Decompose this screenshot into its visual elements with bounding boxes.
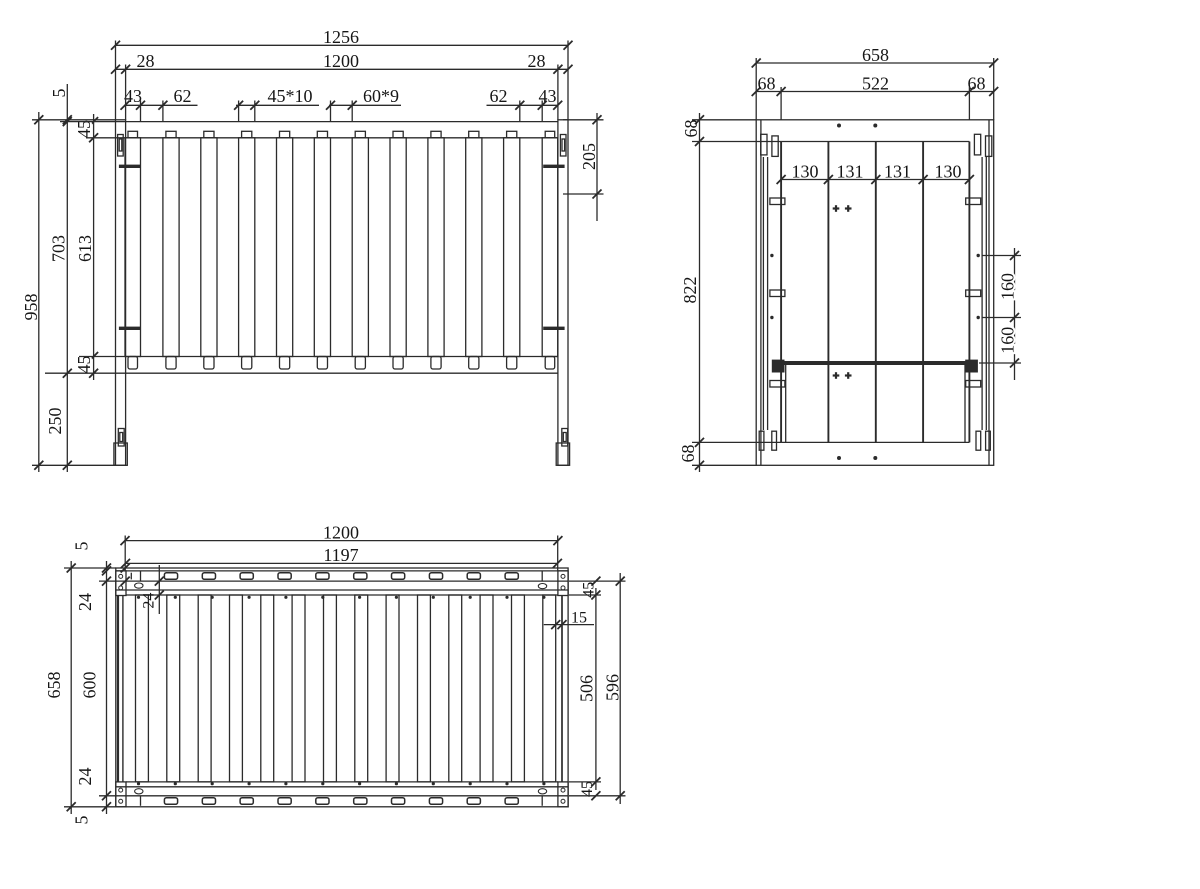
svg-text:596: 596 [603, 674, 623, 701]
svg-text:28: 28 [528, 51, 546, 71]
svg-text:68: 68 [681, 120, 701, 138]
svg-text:68: 68 [968, 73, 986, 93]
svg-text:130: 130 [935, 161, 962, 181]
svg-text:45*10: 45*10 [268, 86, 313, 106]
svg-text:522: 522 [862, 73, 889, 93]
svg-text:250: 250 [45, 408, 65, 435]
svg-text:1200: 1200 [323, 51, 359, 71]
svg-text:131: 131 [837, 161, 864, 181]
svg-text:5: 5 [72, 816, 92, 825]
svg-text:1200: 1200 [323, 522, 359, 542]
svg-text:658: 658 [44, 672, 64, 699]
svg-text:24: 24 [75, 593, 95, 611]
svg-text:24: 24 [75, 768, 95, 786]
svg-text:613: 613 [75, 235, 95, 262]
svg-text:600: 600 [80, 672, 100, 699]
svg-text:45: 45 [579, 781, 596, 797]
svg-text:62: 62 [174, 86, 192, 106]
svg-text:24: 24 [141, 593, 158, 609]
svg-text:45: 45 [74, 120, 94, 138]
svg-text:822: 822 [680, 277, 700, 304]
svg-text:5: 5 [49, 89, 69, 98]
svg-text:43: 43 [124, 86, 142, 106]
svg-text:5: 5 [72, 542, 92, 551]
svg-text:28: 28 [137, 51, 155, 71]
svg-text:160: 160 [998, 327, 1018, 354]
svg-text:160: 160 [998, 273, 1018, 300]
svg-text:62: 62 [490, 86, 508, 106]
svg-text:131: 131 [884, 161, 911, 181]
svg-text:68: 68 [758, 73, 776, 93]
svg-text:130: 130 [792, 161, 819, 181]
svg-text:658: 658 [862, 45, 889, 65]
svg-text:1197: 1197 [323, 545, 358, 565]
svg-text:68: 68 [678, 445, 698, 463]
svg-text:205: 205 [579, 143, 599, 170]
svg-text:45: 45 [74, 356, 94, 374]
svg-text:703: 703 [49, 235, 69, 262]
svg-text:43: 43 [539, 86, 557, 106]
svg-text:1256: 1256 [323, 27, 359, 47]
svg-text:958: 958 [21, 294, 41, 321]
svg-text:60*9: 60*9 [363, 86, 399, 106]
svg-text:15: 15 [571, 609, 587, 626]
svg-text:506: 506 [577, 675, 597, 702]
